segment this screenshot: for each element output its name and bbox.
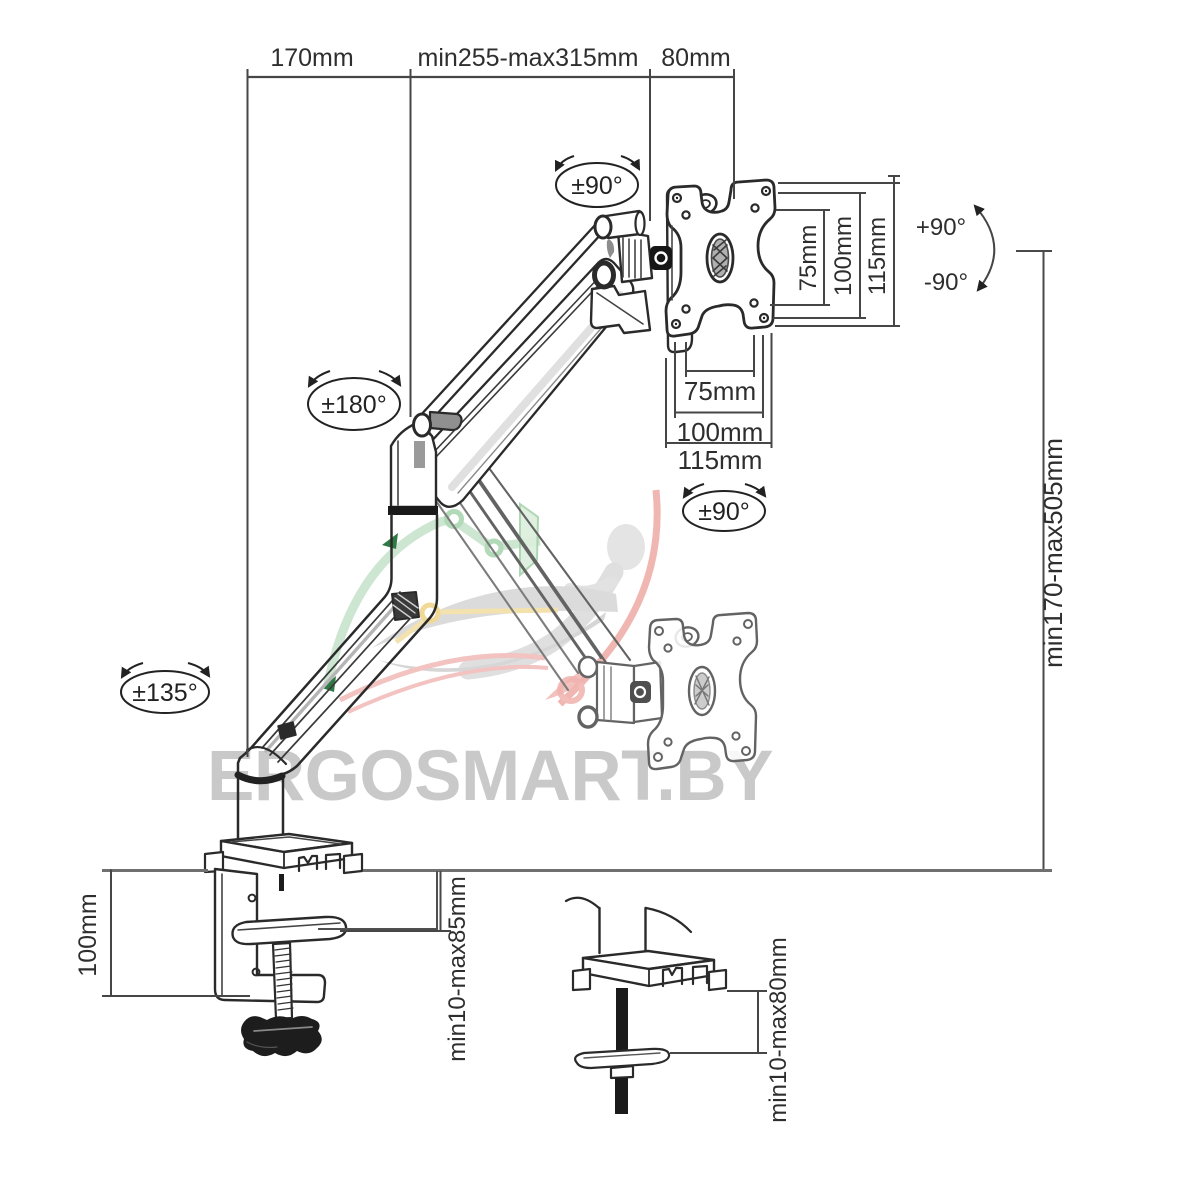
- svg-text:100mm: 100mm: [74, 893, 102, 976]
- svg-text:±90°: ±90°: [698, 498, 750, 526]
- svg-text:ERGOSMART.BY: ERGOSMART.BY: [207, 737, 773, 816]
- svg-text:75mm: 75mm: [795, 225, 822, 292]
- svg-text:100mm: 100mm: [830, 216, 857, 296]
- svg-text:115mm: 115mm: [864, 217, 891, 295]
- svg-text:75mm: 75mm: [684, 376, 756, 406]
- svg-text:min10-max80mm: min10-max80mm: [765, 937, 792, 1122]
- svg-text:min10-max85mm: min10-max85mm: [444, 876, 471, 1061]
- svg-text:min255-max315mm: min255-max315mm: [418, 44, 639, 72]
- svg-text:170mm: 170mm: [270, 44, 353, 72]
- svg-text:±135°: ±135°: [132, 679, 197, 707]
- svg-text:-90°: -90°: [924, 269, 968, 296]
- svg-text:±180°: ±180°: [321, 391, 386, 419]
- svg-text:115mm: 115mm: [678, 445, 763, 475]
- svg-text:±90°: ±90°: [571, 172, 623, 200]
- svg-text:+90°: +90°: [916, 214, 966, 241]
- svg-text:min170-max505mm: min170-max505mm: [1038, 438, 1068, 668]
- svg-text:80mm: 80mm: [661, 44, 730, 72]
